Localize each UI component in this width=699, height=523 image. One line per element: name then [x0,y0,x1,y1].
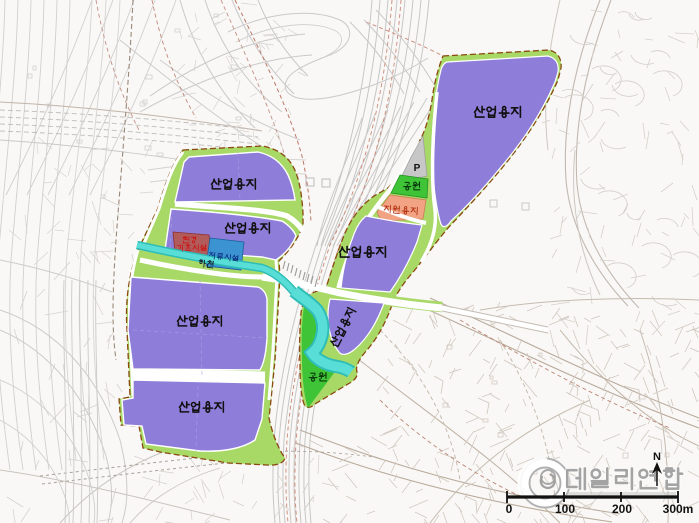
svg-text:P: P [414,163,421,174]
svg-text:N: N [653,451,661,463]
svg-text:100: 100 [555,502,575,516]
svg-text:300m: 300m [663,502,694,516]
svg-text:0: 0 [506,502,513,516]
svg-text:200: 200 [612,502,632,516]
